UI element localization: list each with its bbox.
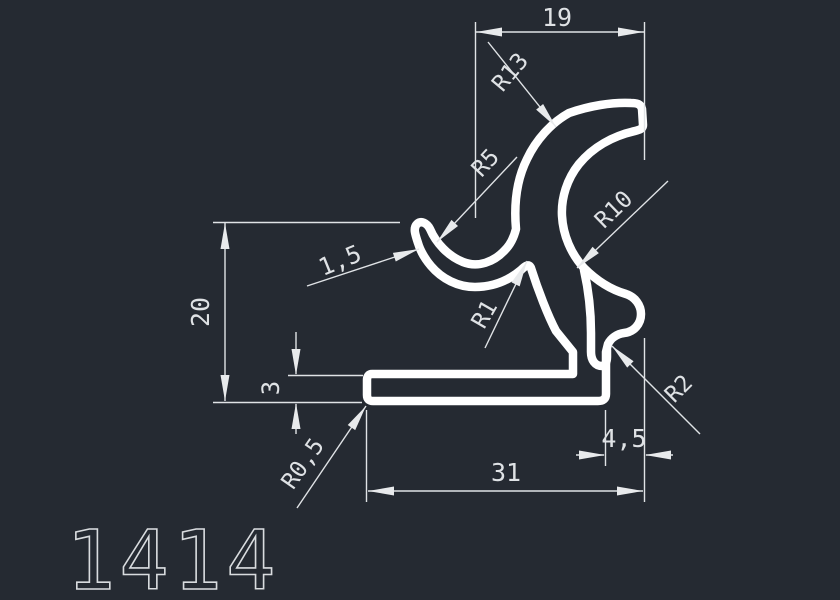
dim-width-top-label: 19 <box>542 3 572 32</box>
dim-tab-width-label: 4,5 <box>601 424 646 453</box>
cad-viewport: 19 20 3 31 4,5 1,5 R13 R5 R10 R1 R2 R0,5… <box>0 0 840 600</box>
dim-height-left-label: 20 <box>186 297 215 327</box>
part-number: 1414 <box>66 514 279 600</box>
drawing-background <box>0 0 840 600</box>
dim-flange-thickness-label: 3 <box>257 381 285 395</box>
cad-drawing: 19 20 3 31 4,5 1,5 R13 R5 R10 R1 R2 R0,5… <box>0 0 840 600</box>
dim-width-bottom-label: 31 <box>491 458 521 487</box>
